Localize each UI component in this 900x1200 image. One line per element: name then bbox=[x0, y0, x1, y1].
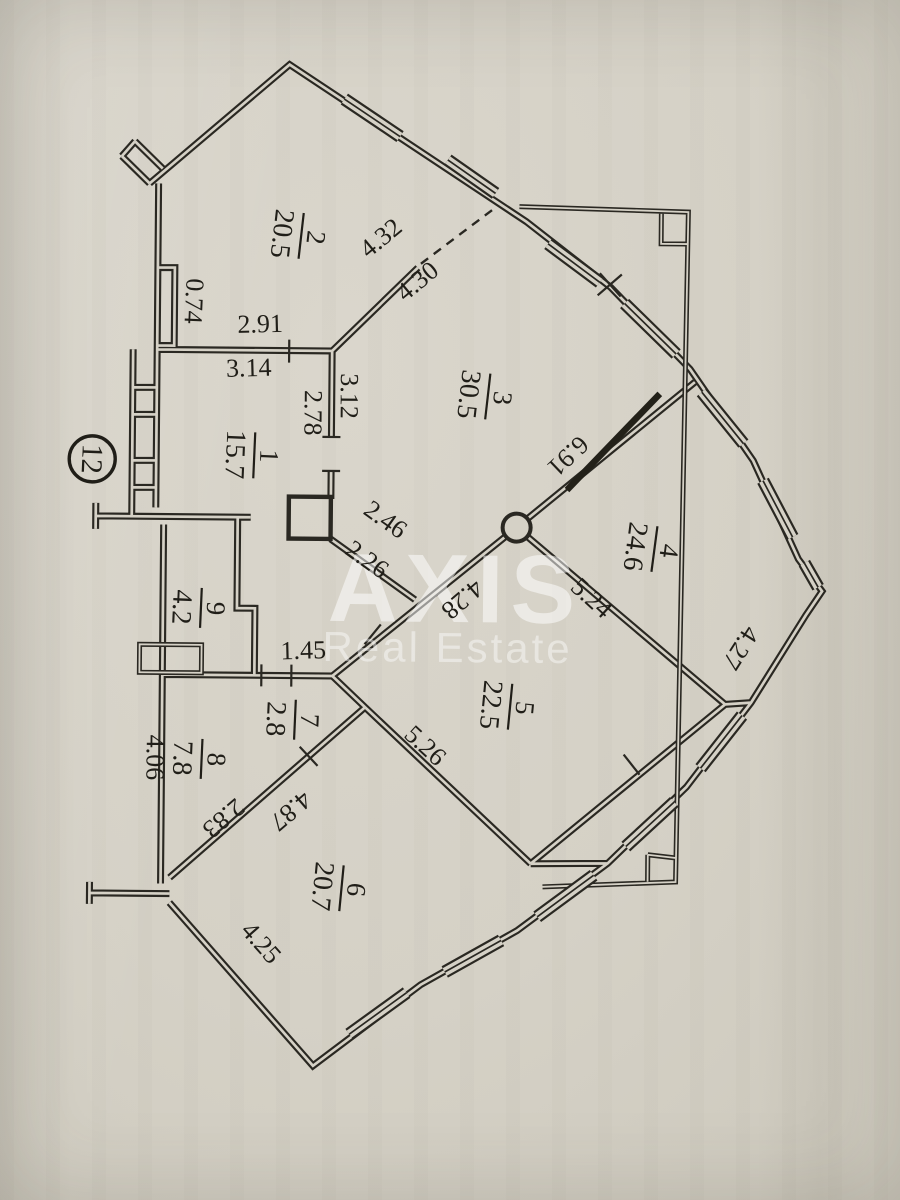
dim-0-74: 0.74 bbox=[179, 278, 210, 325]
svg-text:2: 2 bbox=[300, 229, 331, 246]
dim-4-06: 4.06 bbox=[140, 735, 169, 781]
room-label-9: 9 4.2 bbox=[165, 586, 232, 629]
svg-text:20.7: 20.7 bbox=[304, 860, 340, 912]
svg-text:15.7: 15.7 bbox=[218, 429, 251, 479]
svg-text:7.8: 7.8 bbox=[166, 740, 198, 776]
dimension-ticks bbox=[260, 270, 643, 774]
room-label-6: 6 20.7 bbox=[304, 860, 373, 915]
svg-text:3: 3 bbox=[487, 390, 518, 407]
svg-text:5: 5 bbox=[509, 700, 540, 716]
room-label-7: 7 2.8 bbox=[259, 698, 326, 741]
dim-2-78: 2.78 bbox=[298, 390, 327, 436]
floor-plan-photo: AXIS Real Estate 12 1 15.7 2 20.5 3 30. bbox=[0, 0, 900, 1200]
svg-text:7: 7 bbox=[295, 713, 326, 728]
dim-1-45: 1.45 bbox=[280, 635, 326, 665]
svg-text:1: 1 bbox=[254, 449, 285, 464]
room-label-2: 2 20.5 bbox=[264, 208, 334, 264]
dim-2-83: 2.83 bbox=[197, 793, 250, 845]
svg-text:4.2: 4.2 bbox=[165, 589, 197, 625]
svg-text:9: 9 bbox=[201, 601, 232, 616]
dim-4-32: 4.32 bbox=[354, 212, 408, 263]
svg-text:30.5: 30.5 bbox=[450, 368, 486, 420]
dim-5-26: 5.26 bbox=[399, 719, 452, 771]
floor-plan-drawing: AXIS Real Estate 12 1 15.7 2 20.5 3 30. bbox=[0, 0, 900, 1200]
svg-text:6: 6 bbox=[341, 882, 372, 898]
room-label-1: 1 15.7 bbox=[218, 429, 285, 481]
room-label-4: 4 24.6 bbox=[617, 520, 688, 577]
dim-4-25: 4.25 bbox=[235, 916, 287, 969]
room-label-3: 3 30.5 bbox=[450, 368, 520, 424]
room-label-5: 5 22.5 bbox=[473, 679, 542, 734]
svg-text:4: 4 bbox=[653, 542, 685, 560]
svg-text:8: 8 bbox=[201, 752, 232, 767]
dim-3-12: 3.12 bbox=[335, 373, 364, 419]
svg-text:24.6: 24.6 bbox=[617, 520, 654, 573]
svg-text:22.5: 22.5 bbox=[473, 679, 509, 731]
dim-4-27: 4.27 bbox=[716, 621, 765, 675]
dim-4-30: 4.30 bbox=[391, 256, 445, 307]
watermark-subtitle: Real Estate bbox=[322, 623, 573, 672]
svg-text:2.8: 2.8 bbox=[259, 701, 291, 737]
closet-box bbox=[139, 644, 201, 673]
room-label-8: 8 7.8 bbox=[166, 737, 233, 780]
apartment-number-badge: 12 bbox=[69, 436, 115, 482]
dashed-line bbox=[421, 208, 494, 265]
apartment-number: 12 bbox=[75, 443, 109, 474]
svg-text:20.5: 20.5 bbox=[264, 208, 300, 260]
dim-4-87: 4.87 bbox=[264, 785, 317, 837]
vent-shaft bbox=[289, 497, 331, 539]
dim-3-14: 3.14 bbox=[226, 353, 272, 383]
dim-2-91: 2.91 bbox=[237, 309, 283, 339]
